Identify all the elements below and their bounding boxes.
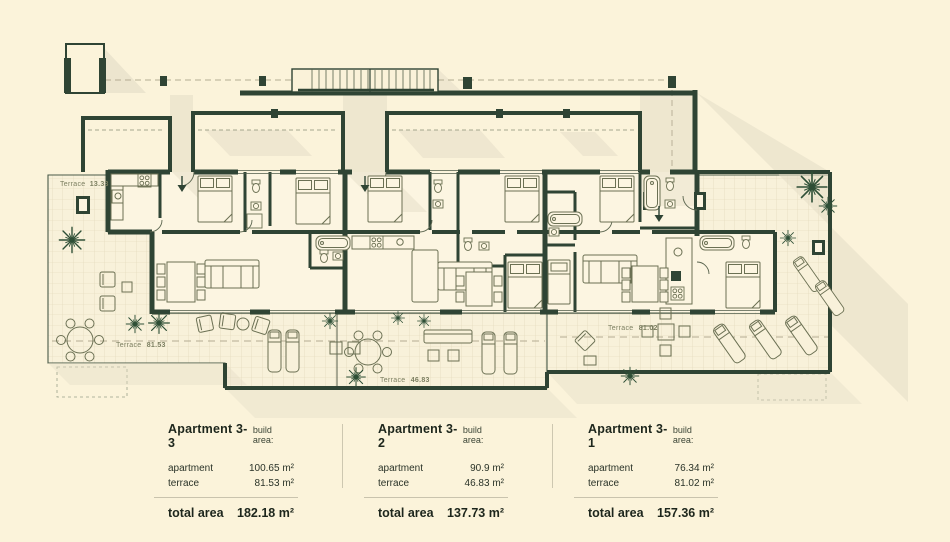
apartment-name: Apartment 3-2: [378, 422, 463, 450]
total-area-label: total area: [588, 505, 644, 521]
total-area-value: 137.73 m²: [447, 505, 504, 521]
palm-tree-icon: [797, 172, 827, 202]
area-row-value: 81.53 m²: [255, 476, 294, 491]
apartment-name: Apartment 3-3: [168, 422, 253, 450]
terrace-label: Terrace 81.53: [116, 342, 166, 349]
area-row-label: terrace: [168, 476, 199, 491]
area-row-label: apartment: [588, 461, 633, 476]
area-row: apartment 76.34 m²: [588, 461, 714, 476]
palm-tree-icon: [819, 197, 837, 215]
build-area-label: build area:: [463, 425, 504, 445]
stairs: [292, 69, 438, 92]
total-area-row: total area 137.73 m²: [378, 505, 504, 521]
area-row-label: apartment: [168, 461, 213, 476]
apartment-summary: Apartment 3-1 build area: apartment 76.3…: [588, 422, 714, 521]
area-row: terrace 46.83 m²: [378, 476, 504, 491]
legend-divider: [342, 424, 343, 488]
build-area-label: build area:: [673, 425, 714, 445]
palm-tree-icon: [417, 314, 430, 327]
apartment-name: Apartment 3-1: [588, 422, 673, 450]
palm-tree-icon: [59, 227, 84, 252]
area-row-value: 76.34 m²: [675, 461, 714, 476]
area-row-label: terrace: [378, 476, 409, 491]
apartment-summary: Apartment 3-3 build area: apartment 100.…: [168, 422, 294, 521]
build-area-label: build area:: [253, 425, 294, 445]
divider: [364, 497, 508, 498]
total-area-row: total area 182.18 m²: [168, 505, 294, 521]
area-row-value: 90.9 m²: [470, 461, 504, 476]
floor-plan-sheet: Terrace 13.33 Terrace 81.53 Terrace 46.8…: [0, 0, 950, 542]
area-row-label: apartment: [378, 461, 423, 476]
area-row-value: 81.02 m²: [675, 476, 714, 491]
palm-tree-icon: [347, 368, 366, 387]
area-row-value: 46.83 m²: [465, 476, 504, 491]
divider: [574, 497, 718, 498]
total-area-label: total area: [378, 505, 434, 521]
terrace-label: Terrace 81.02: [608, 325, 658, 332]
palm-tree-icon: [322, 313, 337, 328]
area-row: terrace 81.53 m²: [168, 476, 294, 491]
total-area-value: 182.18 m²: [237, 505, 294, 521]
palm-tree-icon: [126, 315, 144, 333]
palm-tree-icon: [391, 311, 404, 324]
terrace-label: Terrace 46.83: [380, 377, 430, 384]
total-area-value: 157.36 m²: [657, 505, 714, 521]
palm-tree-icon: [780, 230, 795, 245]
palm-tree-icon: [149, 313, 170, 334]
area-row: apartment 100.65 m²: [168, 461, 294, 476]
area-row: terrace 81.02 m²: [588, 476, 714, 491]
total-area-row: total area 157.36 m²: [588, 505, 714, 521]
area-legend: Apartment 3-3 build area: apartment 100.…: [0, 410, 950, 542]
apartment-summary: Apartment 3-2 build area: apartment 90.9…: [378, 422, 504, 521]
divider: [154, 497, 298, 498]
palm-tree-icon: [621, 367, 639, 385]
legend-divider: [552, 424, 553, 488]
area-row-value: 100.65 m²: [249, 461, 294, 476]
area-row-label: terrace: [588, 476, 619, 491]
terrace-label: Terrace 13.33: [60, 181, 109, 188]
total-area-label: total area: [168, 505, 224, 521]
area-row: apartment 90.9 m²: [378, 461, 504, 476]
